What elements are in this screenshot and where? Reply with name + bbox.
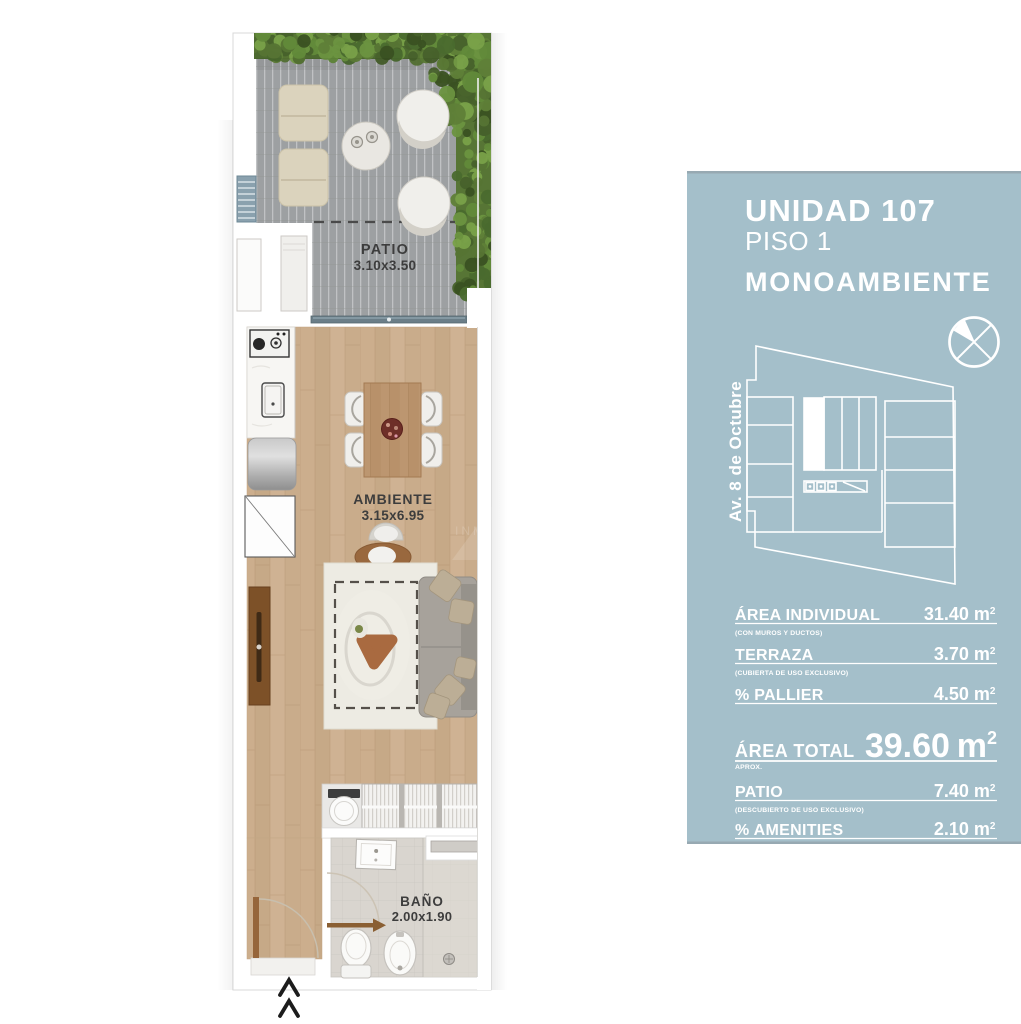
svg-text:PISO 1: PISO 1 — [745, 226, 832, 256]
svg-text:ÁREA INDIVIDUAL: ÁREA INDIVIDUAL — [735, 605, 880, 624]
svg-text:% PALLIER: % PALLIER — [735, 687, 824, 704]
svg-text:BAÑO: BAÑO — [400, 894, 444, 909]
svg-text:% AMENITIES: % AMENITIES — [735, 822, 844, 839]
svg-text:UNIDAD 107: UNIDAD 107 — [745, 193, 936, 228]
svg-text:(CUBIERTA DE USO EXCLUSIVO): (CUBIERTA DE USO EXCLUSIVO) — [735, 670, 848, 677]
svg-text:Av. 8 de Octubre: Av. 8 de Octubre — [726, 381, 745, 522]
svg-text:APROX.: APROX. — [735, 764, 762, 771]
svg-text:3.15x6.95: 3.15x6.95 — [362, 508, 425, 523]
svg-text:3.10x3.50: 3.10x3.50 — [354, 258, 417, 273]
svg-text:2.00x1.90: 2.00x1.90 — [392, 909, 453, 924]
svg-text:MONOAMBIENTE: MONOAMBIENTE — [745, 267, 992, 297]
svg-text:AMBIENTE: AMBIENTE — [353, 491, 433, 507]
svg-text:39.60 m2: 39.60 m2 — [865, 727, 997, 765]
svg-text:ÁREA TOTAL: ÁREA TOTAL — [735, 740, 855, 761]
svg-text:PATIO: PATIO — [361, 242, 409, 258]
svg-text:(CON MUROS Y DUCTOS): (CON MUROS Y DUCTOS) — [735, 630, 822, 637]
svg-text:TERRAZA: TERRAZA — [735, 647, 814, 664]
svg-text:PATIO: PATIO — [735, 784, 783, 801]
svg-text:(DESCUBIERTO DE USO EXCLUSIVO): (DESCUBIERTO DE USO EXCLUSIVO) — [735, 807, 864, 814]
